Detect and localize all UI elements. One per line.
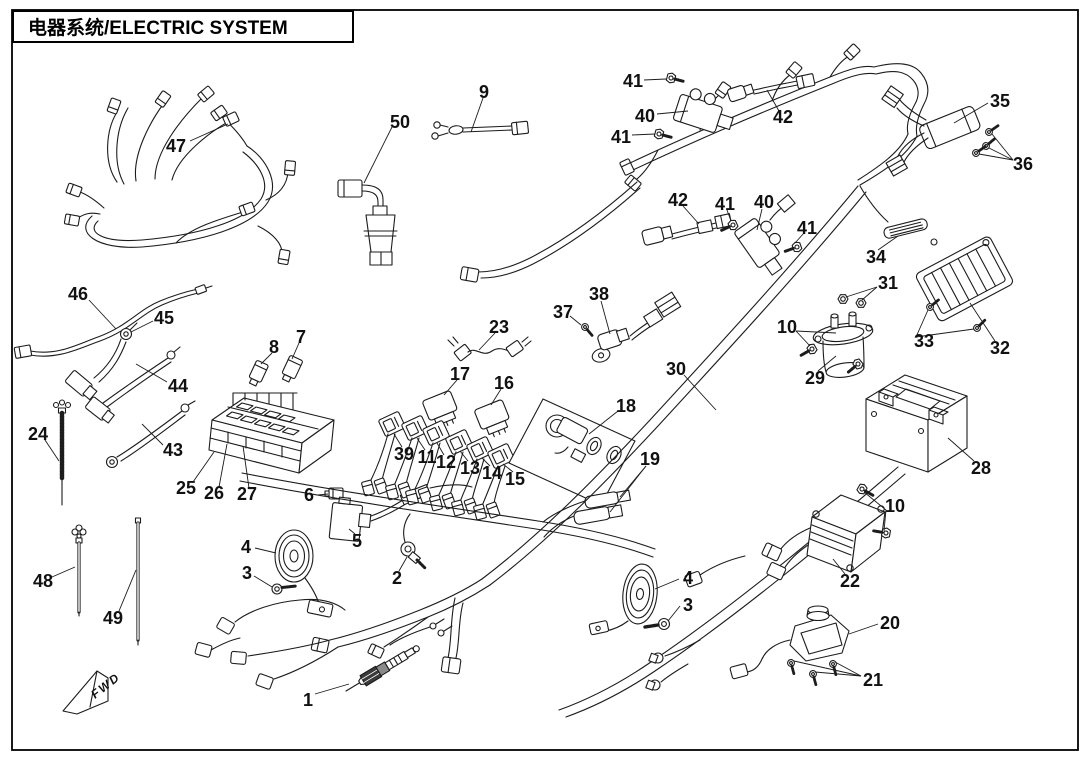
part-callout-23: 23 (489, 317, 509, 337)
part-callout-41: 41 (611, 127, 631, 147)
part-callout-10: 10 (777, 317, 797, 337)
part-callout-12: 12 (436, 452, 456, 472)
part-callout-49: 49 (103, 608, 123, 628)
part-callout-43: 43 (163, 440, 183, 460)
part-callout-15: 15 (505, 469, 525, 489)
part-callout-4: 4 (683, 568, 693, 588)
part-2-sensor (401, 514, 425, 568)
part-4-horn-right (589, 562, 670, 635)
part-callout-40: 40 (635, 106, 655, 126)
part-callout-50: 50 (390, 112, 410, 132)
part-callout-36: 36 (1013, 154, 1033, 174)
part-23-jumper-wire (448, 337, 531, 361)
part-callout-28: 28 (971, 458, 991, 478)
diagram-canvas: FWD (0, 0, 1090, 760)
part-28-battery (866, 375, 967, 472)
part-callout-46: 46 (68, 284, 88, 304)
part-42-plug-cable-mid (641, 214, 731, 246)
part-callout-42: 42 (668, 190, 688, 210)
part-callout-16: 16 (494, 373, 514, 393)
part-44-cable (85, 347, 180, 425)
part-callout-6: 6 (304, 485, 314, 505)
part-callout-41: 41 (623, 71, 643, 91)
part-callout-9: 9 (479, 82, 489, 102)
part-34-strip (860, 186, 937, 245)
part-callout-18: 18 (616, 396, 636, 416)
part-callout-14: 14 (482, 463, 502, 483)
part-callout-3: 3 (683, 595, 693, 615)
part-48-rod (72, 525, 86, 616)
part-callout-41: 41 (797, 218, 817, 238)
part-16-relay (474, 399, 514, 440)
part-callout-22: 22 (840, 571, 860, 591)
part-42-plug-cable-top (727, 73, 815, 102)
part-callout-39: 39 (394, 444, 414, 464)
part-32-regulator (915, 235, 1015, 332)
part-4-horn-left (272, 530, 333, 617)
part-callout-10: 10 (885, 496, 905, 516)
part-50-diagnostic-connector (338, 180, 397, 265)
part-callout-27: 27 (237, 484, 257, 504)
part-callout-42: 42 (773, 107, 793, 127)
part-callout-34: 34 (866, 247, 886, 267)
part-callout-21: 21 (863, 670, 883, 690)
part-9-jumper-cable (432, 121, 529, 139)
part-callout-48: 48 (33, 571, 53, 591)
page-title: 电器系统/ELECTRIC SYSTEM (28, 13, 288, 40)
part-callout-8: 8 (269, 337, 279, 357)
part-25-fuse-box (209, 393, 334, 473)
fwd-direction-marker: FWD (63, 670, 123, 714)
leader-lines (45, 79, 1013, 694)
part-24-threaded-rod (54, 400, 71, 505)
part-callout-1: 1 (303, 690, 313, 710)
part-callout-45: 45 (154, 308, 174, 328)
part-callout-24: 24 (28, 424, 48, 444)
part-callout-2: 2 (392, 568, 402, 588)
part-callout-44: 44 (168, 376, 188, 396)
part-callout-25: 25 (176, 478, 196, 498)
part-46-cable (14, 285, 212, 359)
part-35-module (882, 86, 1000, 176)
part-29-starter-relay (798, 295, 874, 380)
part-callout-13: 13 (460, 458, 480, 478)
part-49-rod (136, 518, 141, 645)
part-callout-31: 31 (878, 273, 898, 293)
part-callout-19: 19 (640, 449, 660, 469)
part-callout-26: 26 (204, 483, 224, 503)
main-harness-upper (460, 44, 928, 283)
parts-catalog-page: 电器系统/ELECTRIC SYSTEM (0, 0, 1090, 760)
part-8-fuse (247, 360, 269, 387)
part-47-front-harness (64, 86, 295, 265)
part-22-ecu (761, 483, 890, 581)
part-callout-11: 11 (417, 447, 436, 467)
part-callout-17: 17 (450, 364, 470, 384)
part-callout-4: 4 (241, 537, 251, 557)
part-callout-33: 33 (914, 331, 934, 351)
part-callout-20: 20 (880, 613, 900, 633)
part-callout-5: 5 (352, 531, 362, 551)
part-7-fuse (280, 355, 303, 384)
part-callout-38: 38 (589, 284, 609, 304)
part-callout-41: 41 (715, 194, 735, 214)
part-callout-29: 29 (805, 368, 825, 388)
part-callout-32: 32 (990, 338, 1010, 358)
part-callout-7: 7 (296, 327, 306, 347)
part-callout-40: 40 (754, 192, 774, 212)
part-callout-35: 35 (990, 91, 1010, 111)
title-box: 电器系统/ELECTRIC SYSTEM (12, 10, 354, 43)
part-callout-30: 30 (666, 359, 686, 379)
part-callout-3: 3 (242, 563, 252, 583)
part-callout-37: 37 (553, 302, 573, 322)
part-callout-47: 47 (166, 136, 186, 156)
part-45-cable (65, 323, 137, 401)
